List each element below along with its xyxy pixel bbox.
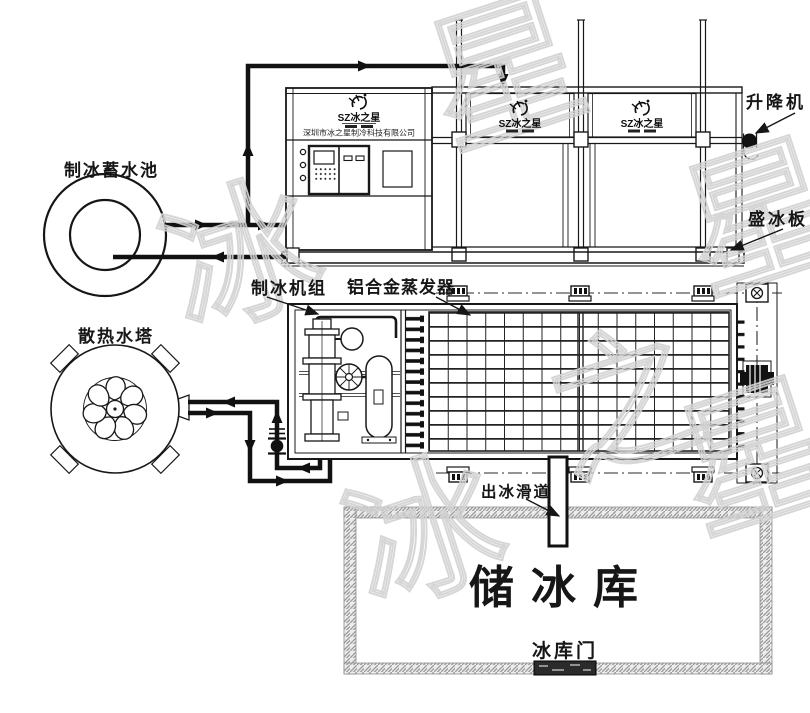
control-panel	[300, 146, 412, 194]
water-pool-label: 制冰蓄水池	[64, 160, 159, 180]
cooling-tower-label: 散热水塔	[78, 326, 154, 346]
unit-label: 制冰机组	[251, 278, 327, 298]
panel-screen	[314, 151, 334, 164]
side-panel	[383, 151, 412, 187]
indicator-button	[300, 162, 305, 167]
slide-label: 出冰滑道	[481, 482, 551, 501]
logo-panel	[588, 94, 696, 138]
logo-slogan-bar	[522, 130, 534, 133]
elevator-label: 升降机	[746, 92, 806, 112]
ice-plate-label: 盛冰板	[748, 209, 808, 229]
watermark-glyph: 星	[409, 0, 604, 176]
cooling-tower	[51, 345, 189, 474]
water-pool	[44, 174, 166, 296]
tube-teeth-left	[406, 314, 425, 451]
diagram-canvas: 冰 星 星 之 星 冰 SZ冰之星 深圳市冰之星制冷科技有限公司 SZ冰之星 S…	[0, 0, 810, 713]
indicator-button	[300, 149, 305, 154]
brand-text: SZ冰之星	[499, 117, 542, 130]
mount-bracket	[569, 286, 591, 301]
ice-plant-diagram: 冰 星 星 之 星 冰 SZ冰之星 深圳市冰之星制冷科技有限公司 SZ冰之星 S…	[0, 0, 810, 713]
ice-machine-unit	[299, 317, 400, 443]
door-label: 冰库门	[532, 639, 598, 662]
keypad-dots	[315, 168, 336, 182]
brand-text: SZ冰之星	[621, 117, 664, 130]
logo-slogan-bar	[628, 130, 640, 133]
tower-pipe-arrows	[206, 397, 310, 487]
storage-door	[534, 661, 596, 675]
ice-slide	[549, 457, 567, 546]
cabinet-logo: SZ冰之星 深圳市冰之星制冷科技有限公司	[303, 94, 415, 138]
logo-slogan-bar	[644, 130, 656, 133]
evaporator-label: 铝合金蒸发器	[347, 277, 455, 297]
storage-title: 储冰库	[469, 562, 655, 613]
indicator-slot	[344, 156, 352, 161]
brand-text: SZ冰之星	[338, 111, 381, 124]
indicator-slot	[356, 156, 364, 161]
logo-slogan-bar	[506, 130, 518, 133]
panel-logo: SZ冰之星	[621, 100, 664, 133]
company-text: 深圳市冰之星制冷科技有限公司	[303, 128, 415, 138]
indicator-button	[300, 175, 305, 180]
